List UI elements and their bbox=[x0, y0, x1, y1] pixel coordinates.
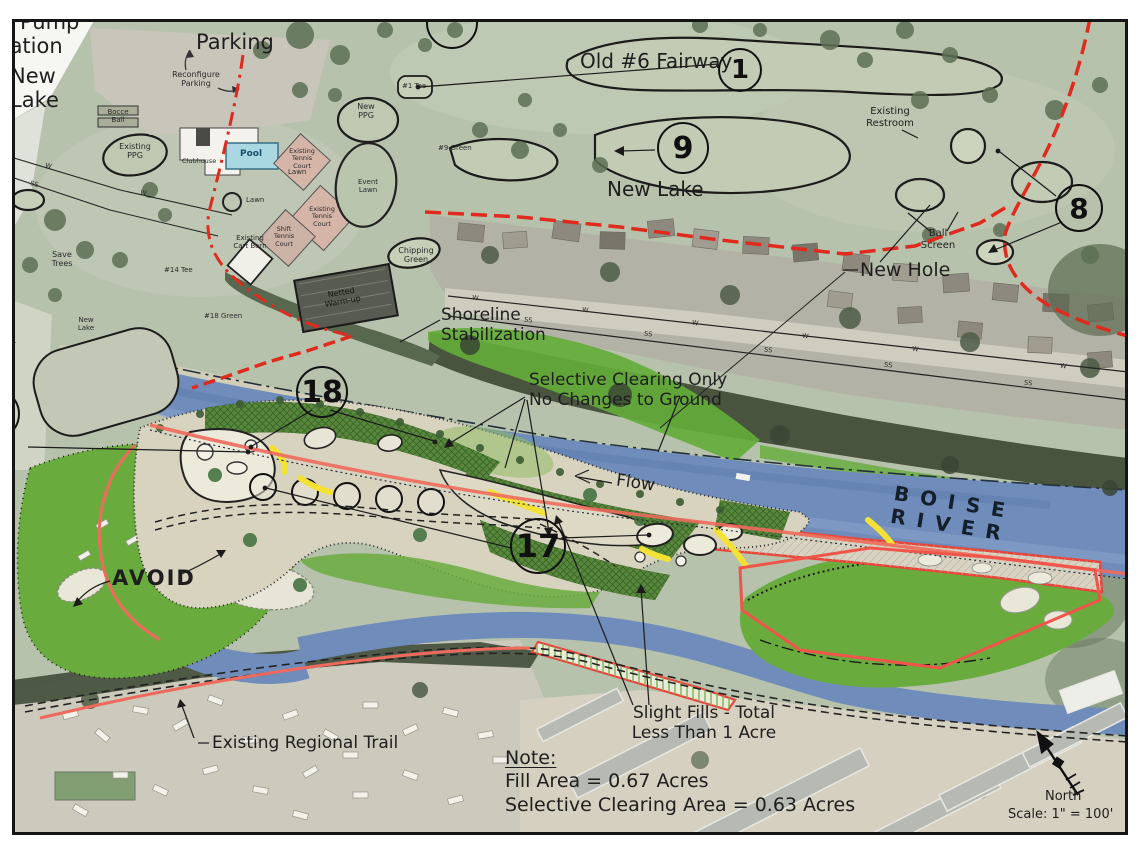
label-reconfigure-parking: Reconfigure Parking bbox=[172, 70, 220, 88]
utility-ss-label: SS bbox=[1024, 380, 1033, 388]
label-pool: Pool bbox=[240, 149, 262, 159]
utility-ss-label: SS bbox=[29, 180, 39, 189]
hole-number: 17 bbox=[516, 527, 561, 565]
hole-number: 9 bbox=[673, 131, 694, 166]
hole-number: 18 bbox=[301, 375, 343, 410]
label-clubhouse: Clubhouse bbox=[182, 158, 216, 165]
utility-w-label: W bbox=[912, 346, 919, 354]
label-parking: Parking bbox=[196, 30, 274, 54]
label-new-lake-mid: New Lake bbox=[607, 178, 704, 201]
label-existing-tennis-a: Existing Tennis Court bbox=[289, 148, 315, 170]
map-world: Pump Station New Lake Parking Reconfigur… bbox=[12, 19, 1128, 835]
hole-circle-18: 18 bbox=[296, 366, 348, 418]
label-sewer-line: Sewer Line bbox=[12, 340, 16, 361]
label-chipping-green: Chipping Green bbox=[398, 246, 433, 264]
label-scale: Scale: 1" = 100' bbox=[1008, 808, 1113, 823]
label-note-heading: Note: bbox=[505, 748, 556, 770]
label-new-ppg: New PPG bbox=[357, 102, 374, 120]
hole-number: 5 bbox=[12, 395, 14, 433]
hole-circle-17: 17 bbox=[510, 518, 566, 574]
utility-ss-label: SS bbox=[644, 331, 653, 339]
label-new-lake-nw: New Lake bbox=[12, 64, 59, 112]
label-existing-cart-barn: Existing Cart Barn bbox=[233, 234, 266, 250]
label-event-lawn: Event Lawn bbox=[358, 178, 378, 194]
label-existing-restroom: Existing Restroom bbox=[866, 106, 914, 129]
label-north: North bbox=[1045, 790, 1081, 805]
label-slight-fills: Slight Fills - Total Less Than 1 Acre bbox=[632, 704, 776, 743]
utility-ss-label: SS bbox=[764, 347, 773, 355]
hole-number: 8 bbox=[1069, 192, 1088, 225]
utility-ss-label: SS bbox=[884, 362, 893, 370]
utility-w-label: W bbox=[582, 307, 589, 315]
utility-ss-label: SS bbox=[524, 317, 533, 325]
label-lawn-b: Lawn bbox=[246, 196, 264, 204]
label-new-hole: New Hole bbox=[860, 260, 950, 282]
label-ball-screen: Ball Screen bbox=[921, 228, 955, 251]
label-fill-area: Fill Area = 0.67 Acres bbox=[505, 771, 709, 793]
label-14-tee: #14 Tee bbox=[164, 266, 193, 274]
hole-circle-9: 9 bbox=[657, 122, 709, 174]
label-old-6-fairway: Old #6 Fairway bbox=[580, 50, 732, 73]
hole-circle-8: 8 bbox=[1055, 184, 1103, 232]
label-18-green: #18 Green bbox=[204, 312, 242, 320]
utility-w-label: W bbox=[1060, 363, 1067, 371]
label-existing-regional-trail: Existing Regional Trail bbox=[212, 734, 398, 754]
label-new-lake-small: New Lake bbox=[78, 316, 94, 332]
site-plan-page: Pump Station New Lake Parking Reconfigur… bbox=[0, 0, 1140, 855]
map-artwork bbox=[12, 19, 1128, 835]
label-existing-tennis-b: Existing Tennis Court bbox=[309, 206, 335, 228]
utility-w-label: W bbox=[692, 320, 699, 328]
label-existing-ppg: Existing PPG bbox=[119, 142, 151, 160]
label-1-tee: #1 Tee bbox=[402, 82, 426, 90]
label-selective-clearing-note: Selective Clearing Only No Changes to Gr… bbox=[529, 371, 727, 410]
label-save-trees: Save Trees bbox=[52, 250, 73, 268]
site-plan-map: Pump Station New Lake Parking Reconfigur… bbox=[12, 19, 1128, 835]
utility-w-label: W bbox=[802, 333, 809, 341]
hole-number: 1 bbox=[731, 55, 749, 85]
label-bocce-ball: Bocce Ball bbox=[107, 108, 128, 124]
label-selective-clearing-area: Selective Clearing Area = 0.63 Acres bbox=[505, 795, 855, 817]
label-shift-tennis: Shift Tennis Court bbox=[274, 226, 294, 248]
hole-circle-1: 1 bbox=[718, 48, 762, 92]
label-pump-station: Pump Station bbox=[12, 19, 79, 58]
utility-w-label: W bbox=[472, 295, 479, 303]
label-avoid: AVOID bbox=[112, 566, 196, 590]
label-9-green: #9 Green bbox=[438, 144, 472, 152]
label-shoreline-stabilization: Shoreline Stabilization bbox=[441, 306, 546, 345]
